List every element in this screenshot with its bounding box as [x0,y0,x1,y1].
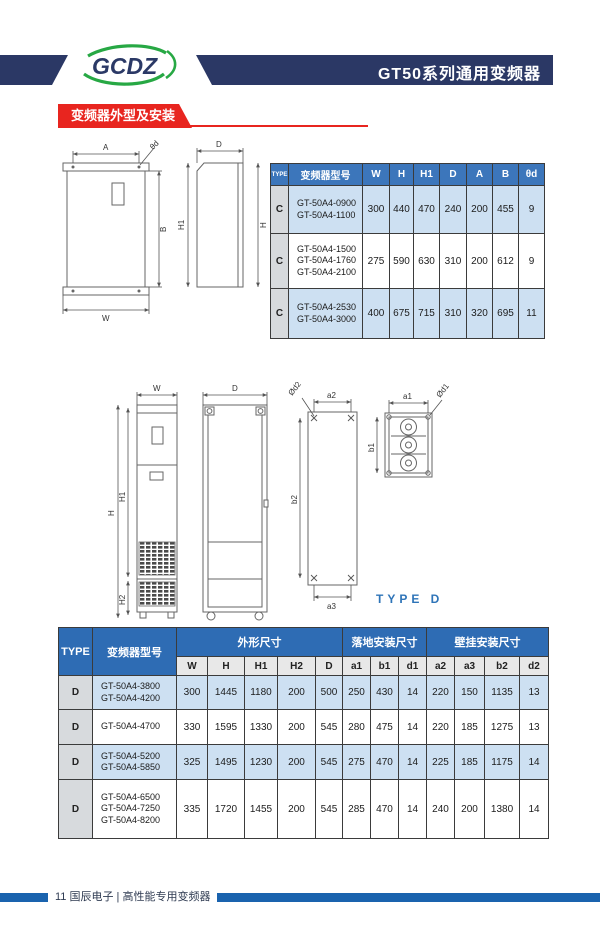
dim-label-b2: b2 [290,495,299,504]
cell: 1135 [485,676,520,710]
cell: 250 [343,676,371,710]
cell: 13 [520,710,549,745]
cell: 185 [455,745,485,780]
col-header: H2 [278,657,316,676]
cell: GT-50A4-1500 GT-50A4-1760 GT-50A4-2100 [289,234,363,289]
model: GT-50A4-4700 [101,721,176,732]
section-banner: 变频器外型及安装 [58,104,192,128]
cell: 220 [427,676,455,710]
cell: 280 [343,710,371,745]
col-header: TYPE [271,164,289,186]
cell: D [59,710,93,745]
vent-grille-upper [139,542,175,575]
cell: 470 [414,186,440,234]
cabinet-side-view [203,405,268,620]
vent-grille-lower [139,582,175,606]
mounting-table-type-d: TYPE 变频器型号 外形尺寸 落地安装尺寸 壁挂安装尺寸 W H H1 H2 … [58,627,549,839]
model: GT-50A4-2530 [297,302,362,313]
dim-label-thetad: θd [148,139,161,152]
col-header: b1 [371,657,399,676]
col-group-floor: 落地安装尺寸 [343,628,427,657]
table-header-row: TYPE 变频器型号 W H H1 D A B θd [271,164,545,186]
dim-label-A: A [103,143,109,152]
cell: 1595 [208,710,245,745]
dim-label-d1: Ød1 [434,382,451,399]
cell: 1380 [485,780,520,839]
col-header: a2 [427,657,455,676]
cell: 590 [390,234,414,289]
dimensions-table-type-c: TYPE 变频器型号 W H H1 D A B θd C GT-50A4-090… [270,163,545,339]
dim-label-H2: H2 [118,594,127,605]
logo-swoosh-right [166,51,175,78]
table-row: D GT-50A4-4700 330 1595 1330 200 545 280… [59,710,549,745]
cell: 1275 [485,710,520,745]
cell: 14 [520,745,549,780]
model: GT-50A4-6500 [101,792,176,803]
model: GT-50A4-5850 [101,762,176,773]
cell: 1495 [208,745,245,780]
cell: 285 [343,780,371,839]
col-header: d2 [520,657,549,676]
cell: 455 [493,186,519,234]
model: GT-50A4-5200 [101,751,176,762]
footer-tagline: 国辰电子 | 高性能专用变频器 [69,891,210,903]
table-row: D GT-50A4-6500 GT-50A4-7250 GT-50A4-8200… [59,780,549,839]
col-header: H [208,657,245,676]
cell: 675 [390,289,414,339]
cell: 13 [520,676,549,710]
cell: 545 [316,780,343,839]
col-header: H [390,164,414,186]
cell: 275 [343,745,371,780]
cell: 200 [467,234,493,289]
cell: 14 [399,780,427,839]
cell: D [59,780,93,839]
dim-label-D: D [216,140,222,149]
cell: 220 [427,710,455,745]
manual-page: GCDZ GT50系列通用变频器 变频器外型及安装 A θd B [0,0,600,947]
col-header: H1 [245,657,278,676]
cabinet-front-view [137,405,177,618]
col-header: H1 [414,164,440,186]
model: GT-50A4-1500 [297,244,362,255]
cell: 14 [399,710,427,745]
cell: GT-50A4-5200 GT-50A4-5850 [93,745,177,780]
col-header: θd [519,164,545,186]
col-header: W [177,657,208,676]
col-header: W [363,164,390,186]
cell: 200 [278,676,316,710]
cell: 1330 [245,710,278,745]
col-header: B [493,164,519,186]
table-row: C GT-50A4-1500 GT-50A4-1760 GT-50A4-2100… [271,234,545,289]
col-header: b2 [485,657,520,676]
figure-caption-type-d: TYPE D [376,592,443,606]
footer-text: 11 国辰电子 | 高性能专用变频器 [55,888,210,904]
col-header: a3 [455,657,485,676]
cell: 500 [316,676,343,710]
col-group-wall: 壁挂安装尺寸 [427,628,549,657]
front-view [63,163,149,295]
cell: 1445 [208,676,245,710]
cell: 320 [467,289,493,339]
brand-logo: GCDZ [70,44,190,88]
cell: 200 [278,780,316,839]
model: GT-50A4-0900 [297,198,362,209]
model: GT-50A4-1100 [297,210,362,221]
footer-bar-left [0,893,48,902]
model: GT-50A4-7250 [101,803,176,814]
col-header: TYPE [59,628,93,676]
cell: D [59,745,93,780]
cell: 200 [455,780,485,839]
dim-label-H1: H1 [118,491,127,502]
col-header: 变频器型号 [289,164,363,186]
dim-label-a3: a3 [327,602,336,611]
cell: 475 [371,710,399,745]
cell: 470 [371,745,399,780]
keypad [152,427,163,444]
model: GT-50A4-4200 [101,693,176,704]
outline-drawing-type-c: A θd B W D H1 H [30,138,270,350]
outline-drawing-type-d: W H H1 H2 D [80,382,480,622]
cell: 1180 [245,676,278,710]
cell: 1175 [485,745,520,780]
dim-label-B: B [159,227,168,232]
cell: 430 [371,676,399,710]
cell: GT-50A4-3800 GT-50A4-4200 [93,676,177,710]
model: GT-50A4-3800 [101,681,176,692]
cell: 14 [520,780,549,839]
table-row: D GT-50A4-3800 GT-50A4-4200 300 1445 118… [59,676,549,710]
cell: 715 [414,289,440,339]
wall-mount-view [308,412,357,585]
table-row: C GT-50A4-2530 GT-50A4-3000 400 675 715 … [271,289,545,339]
col-header: 变频器型号 [93,628,177,676]
cell: 310 [440,234,467,289]
model: GT-50A4-2100 [297,267,362,278]
floor-mount-view [385,413,432,477]
cell: 14 [399,676,427,710]
dim-label-D: D [232,384,238,393]
page-number: 11 [55,891,66,903]
cell: 300 [177,676,208,710]
cell: 150 [455,676,485,710]
logo-text: GCDZ [92,53,158,79]
cell: 325 [177,745,208,780]
col-header: D [440,164,467,186]
dim-label-a1: a1 [403,392,412,401]
footer-bar-right [217,893,600,902]
cell: C [271,186,289,234]
col-header: D [316,657,343,676]
cell: C [271,234,289,289]
model: GT-50A4-3000 [297,314,362,325]
cell: 335 [177,780,208,839]
cell: 275 [363,234,390,289]
table-row: C GT-50A4-0900 GT-50A4-1100 300 440 470 … [271,186,545,234]
cell: 200 [278,745,316,780]
cell: GT-50A4-6500 GT-50A4-7250 GT-50A4-8200 [93,780,177,839]
cell: 545 [316,710,343,745]
cell: 14 [399,745,427,780]
cell: 545 [316,745,343,780]
cell: GT-50A4-2530 GT-50A4-3000 [289,289,363,339]
keypad [112,183,124,205]
dim-label-W: W [102,314,110,323]
dim-label-H1: H1 [177,219,186,230]
cell: 612 [493,234,519,289]
cell: 630 [414,234,440,289]
model: GT-50A4-1760 [297,255,362,266]
dim-label-H: H [107,510,116,516]
dim-label-H: H [259,222,268,228]
dim-label-b1: b1 [367,443,376,452]
cell: 695 [493,289,519,339]
col-header: A [467,164,493,186]
cell: 185 [455,710,485,745]
cell: C [271,289,289,339]
cell: 440 [390,186,414,234]
cell: 11 [519,289,545,339]
section-banner-line [190,125,368,127]
cell: 400 [363,289,390,339]
cell: 9 [519,234,545,289]
cell: 200 [467,186,493,234]
dim-label-W: W [153,384,161,393]
cell: GT-50A4-4700 [93,710,177,745]
model: GT-50A4-8200 [101,815,176,826]
page-title: GT50系列通用变频器 [196,60,541,84]
cell: 300 [363,186,390,234]
cell: D [59,676,93,710]
dim-label-a2: a2 [327,391,336,400]
cell: 1455 [245,780,278,839]
dim-label-d2: Ød2 [286,382,303,397]
cell: 470 [371,780,399,839]
cell: GT-50A4-0900 GT-50A4-1100 [289,186,363,234]
col-header: a1 [343,657,371,676]
cell: 9 [519,186,545,234]
table-row: D GT-50A4-5200 GT-50A4-5850 325 1495 123… [59,745,549,780]
cell: 1230 [245,745,278,780]
cell: 200 [278,710,316,745]
cell: 240 [427,780,455,839]
cell: 330 [177,710,208,745]
side-view [197,163,243,287]
cell: 240 [440,186,467,234]
cell: 225 [427,745,455,780]
col-header: d1 [399,657,427,676]
cell: 1720 [208,780,245,839]
col-group-outline: 外形尺寸 [177,628,343,657]
table-group-header-row: TYPE 变频器型号 外形尺寸 落地安装尺寸 壁挂安装尺寸 [59,628,549,657]
header-bar-left [0,55,68,85]
cell: 310 [440,289,467,339]
